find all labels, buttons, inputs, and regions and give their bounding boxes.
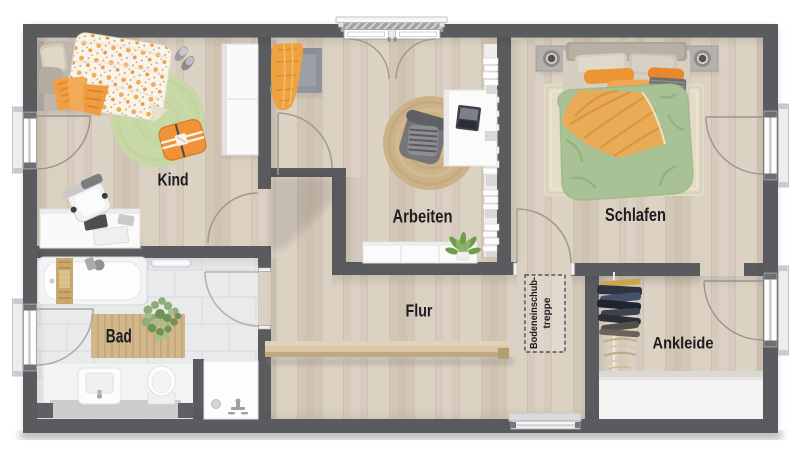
svg-text:Kind: Kind xyxy=(158,170,189,190)
svg-text:Arbeiten: Arbeiten xyxy=(393,206,453,227)
svg-text:Ankleide: Ankleide xyxy=(653,335,714,353)
svg-text:Bodeneinschub-: Bodeneinschub- xyxy=(529,277,540,349)
svg-text:Flur: Flur xyxy=(406,301,433,321)
svg-text:treppe: treppe xyxy=(542,297,553,328)
svg-text:Schlafen: Schlafen xyxy=(605,204,666,225)
svg-text:Bad: Bad xyxy=(106,327,132,348)
